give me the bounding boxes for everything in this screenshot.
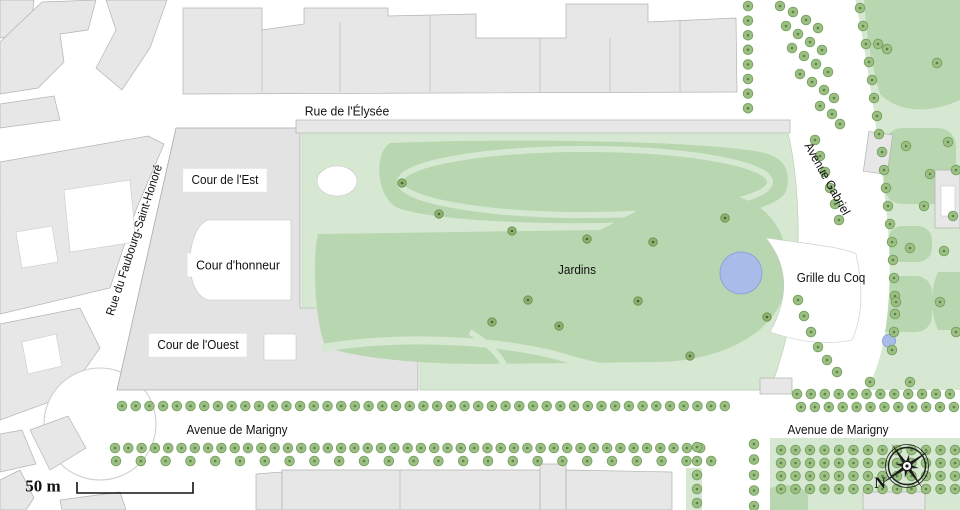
garden (302, 133, 798, 390)
scale-label: 50 m (25, 478, 60, 495)
label-avenue-de-marigny-east: Avenue de Marigny (787, 424, 888, 437)
label-cour-d-honneur: Cour d'honneur (188, 254, 289, 277)
label-cour-de-l-ouest: Cour de l'Ouest (149, 334, 247, 357)
garden-wall-strip (296, 120, 790, 133)
north-label: N (874, 476, 886, 492)
pond-icon (720, 252, 762, 294)
label-grille-du-coq: Grille du Coq (797, 272, 866, 285)
label-avenue-de-marigny-west: Avenue de Marigny (186, 424, 287, 437)
fountain (317, 166, 357, 196)
label-rue-de-l-elysee: Rue de l'Élysée (305, 105, 390, 118)
map-canvas: Rue de l'Élysée Rue du Faubourg-Saint-Ho… (0, 0, 960, 510)
scale-bar-icon (77, 482, 193, 493)
label-jardins: Jardins (558, 264, 596, 277)
buildings-south (256, 464, 702, 510)
label-cour-de-l-est: Cour de l'Est (183, 169, 267, 192)
buildings-north (183, 4, 737, 94)
